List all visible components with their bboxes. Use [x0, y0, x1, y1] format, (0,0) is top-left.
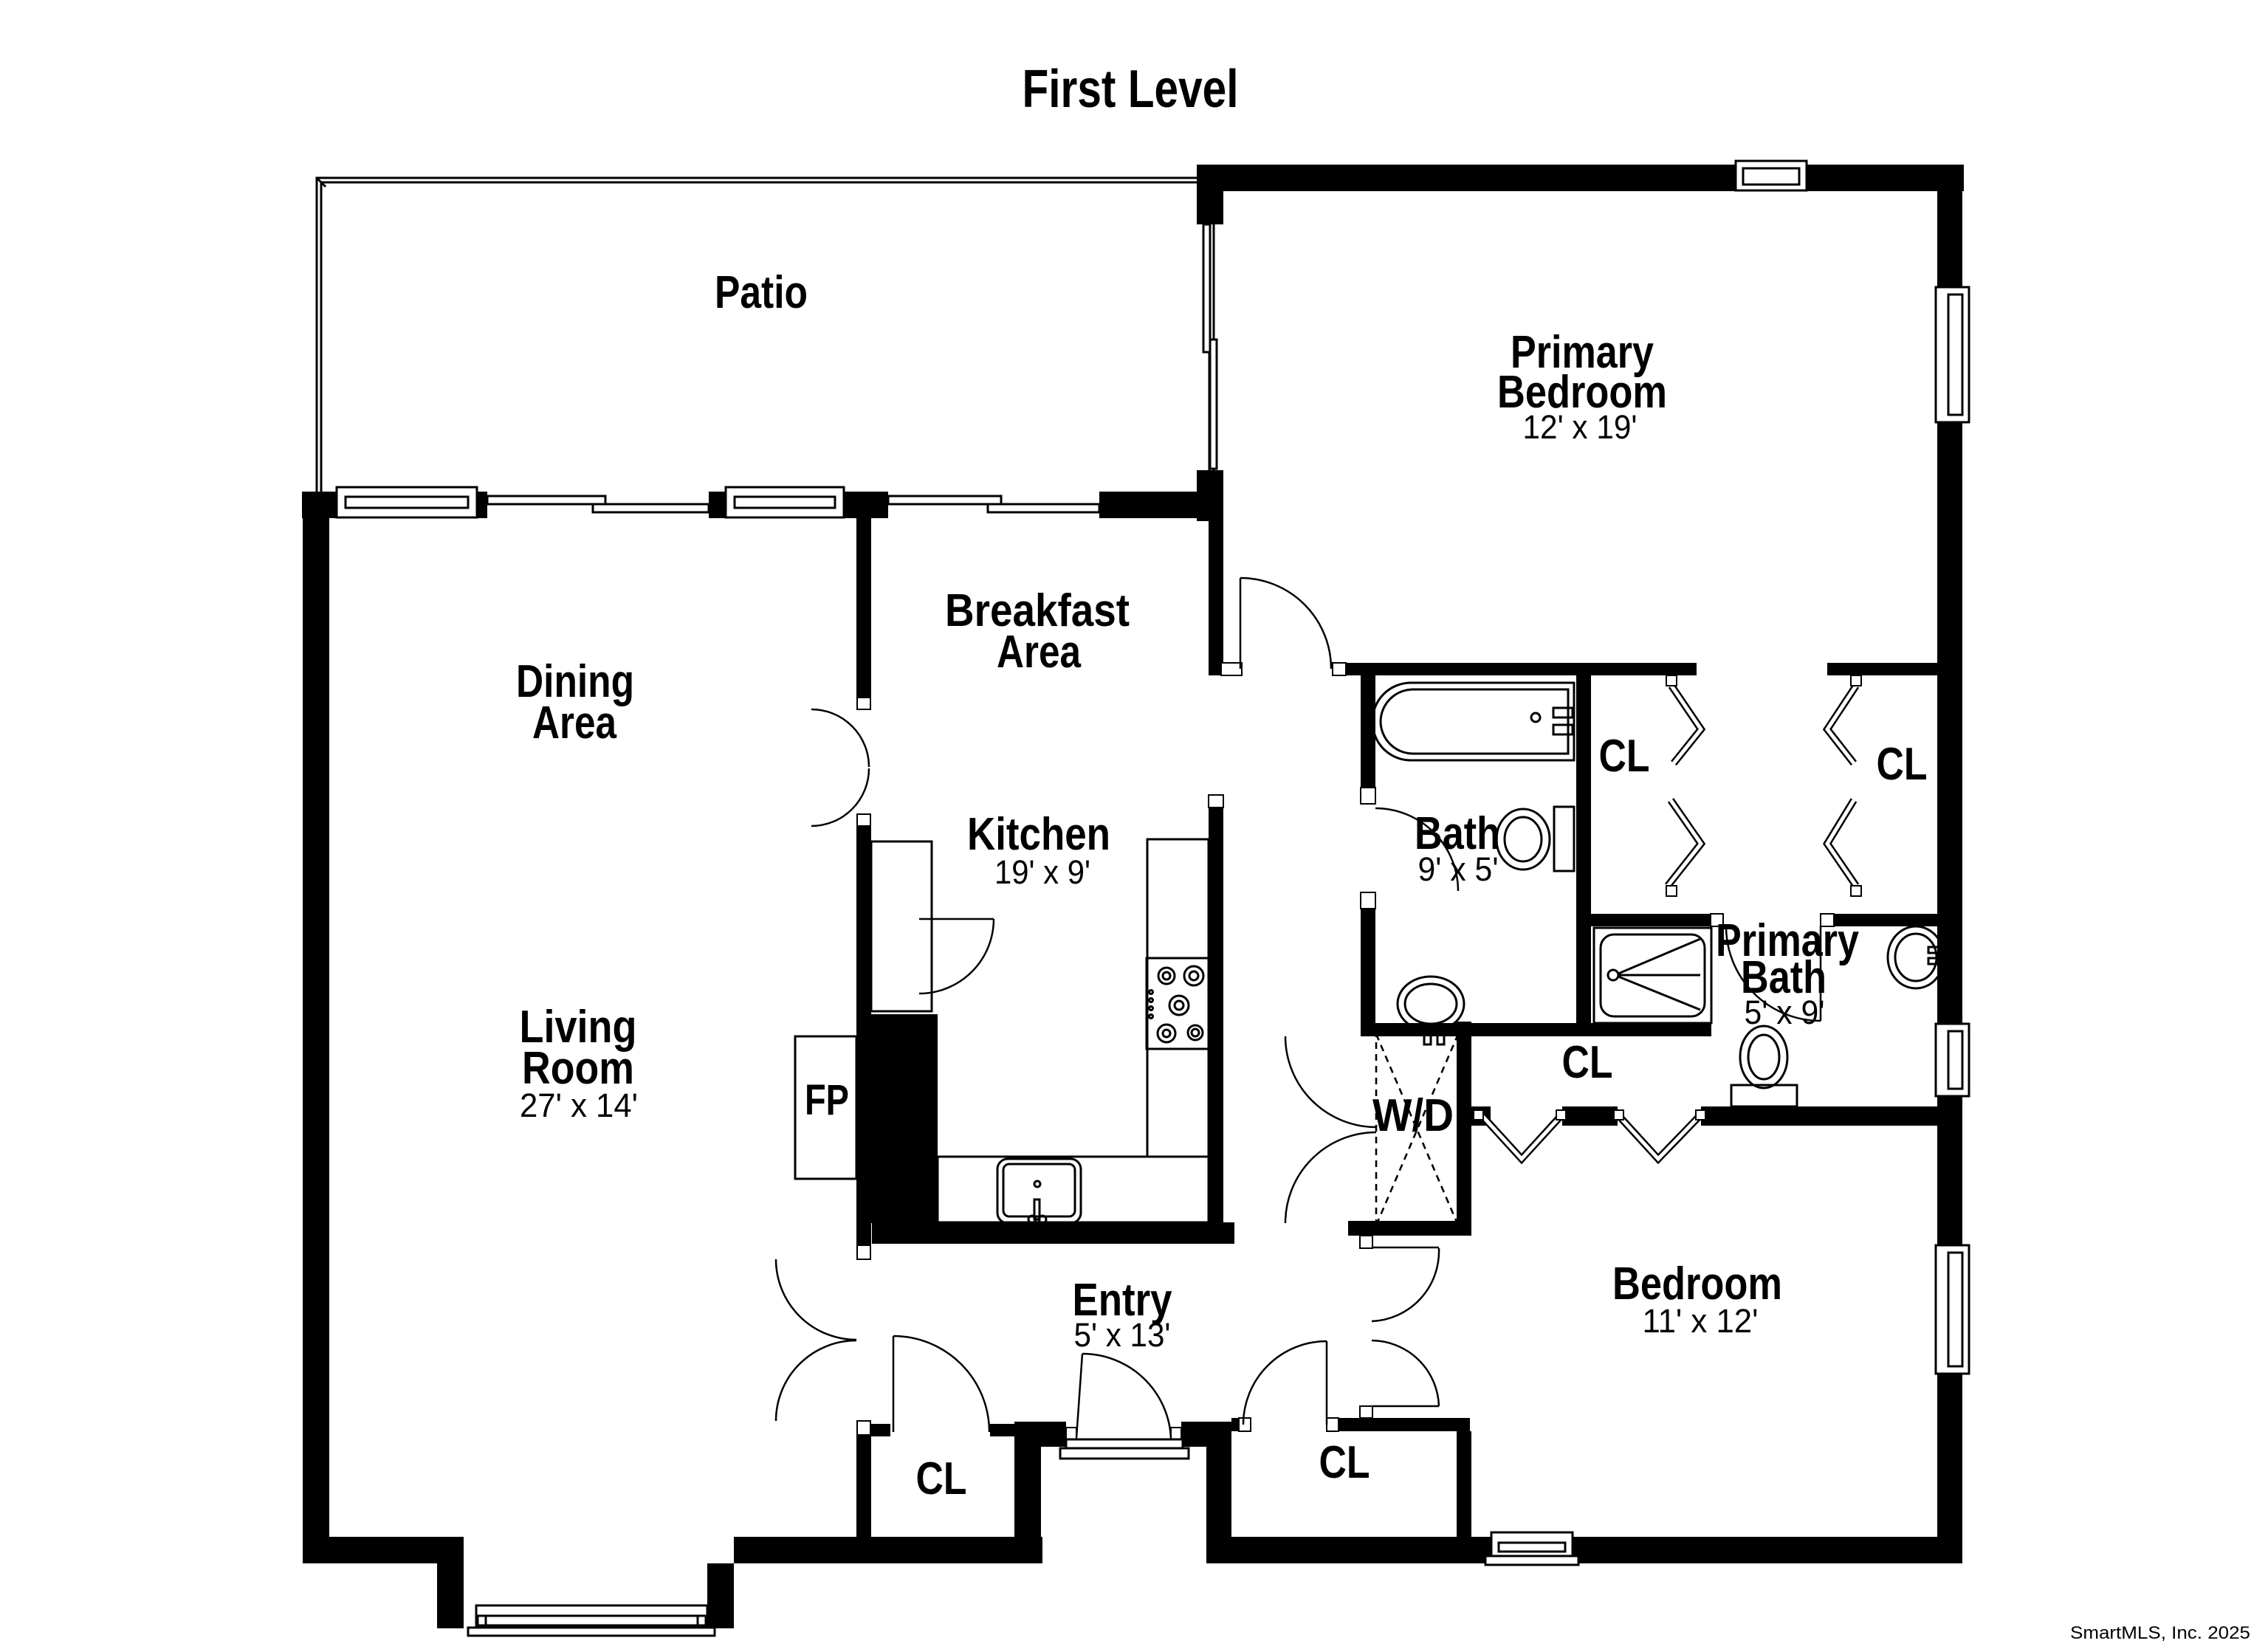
svg-text:Kitchen: Kitchen — [967, 809, 1110, 860]
svg-text:W/D: W/D — [1372, 1090, 1454, 1141]
svg-text:FP: FP — [805, 1076, 849, 1124]
svg-text:CL: CL — [1319, 1437, 1370, 1488]
svg-text:CL: CL — [916, 1453, 967, 1504]
svg-text:5' x 13': 5' x 13' — [1074, 1316, 1171, 1354]
svg-text:27' x 14': 27' x 14' — [520, 1087, 638, 1124]
svg-text:11' x 12': 11' x 12' — [1643, 1302, 1759, 1340]
svg-text:CL: CL — [1599, 731, 1650, 782]
svg-text:Area: Area — [532, 698, 616, 748]
svg-text:Area: Area — [997, 627, 1081, 678]
svg-text:5' x 9': 5' x 9' — [1745, 994, 1825, 1031]
svg-text:9' x 5': 9' x 5' — [1418, 850, 1499, 888]
svg-text:12' x 19': 12' x 19' — [1523, 408, 1638, 446]
svg-text:CL: CL — [1562, 1037, 1613, 1088]
svg-text:19' x 9': 19' x 9' — [994, 853, 1090, 891]
svg-text:CL: CL — [1877, 739, 1928, 790]
svg-text:Patio: Patio — [715, 267, 808, 318]
svg-text:SmartMLS, Inc. 2025: SmartMLS, Inc. 2025 — [2070, 1623, 2250, 1643]
svg-text:First Level: First Level — [1023, 60, 1239, 119]
